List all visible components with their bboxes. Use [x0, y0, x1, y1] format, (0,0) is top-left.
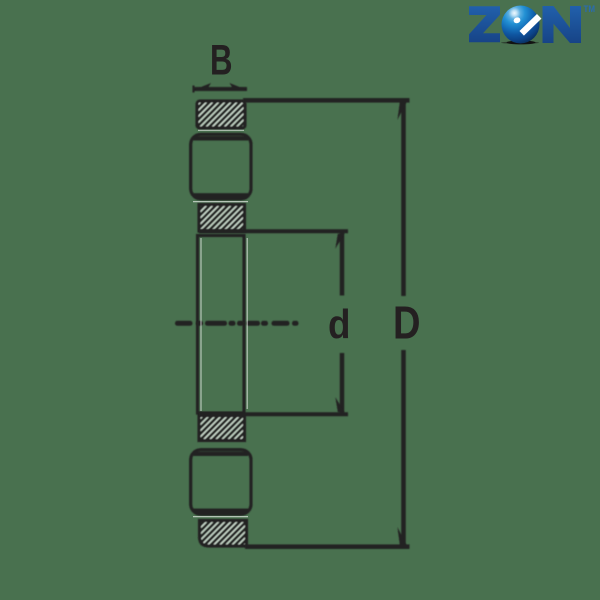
svg-text:D: D [393, 296, 421, 348]
svg-text:d: d [328, 301, 351, 347]
svg-text:TM: TM [584, 4, 596, 14]
svg-text:B: B [210, 37, 233, 85]
